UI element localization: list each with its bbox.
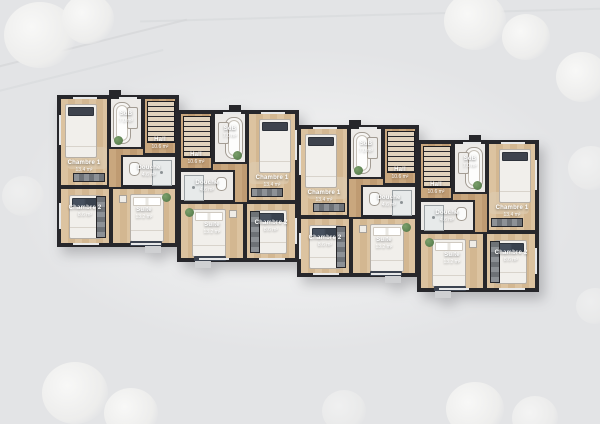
tree-icon — [446, 382, 504, 424]
tree-icon — [2, 176, 44, 216]
window-icon — [73, 97, 97, 99]
bed-icon — [130, 194, 164, 242]
shower-icon — [152, 160, 172, 186]
room-douche: Douche 4.6 m² — [361, 185, 417, 217]
toilet-icon — [129, 162, 140, 176]
sink-icon — [218, 122, 229, 144]
window-icon — [359, 127, 377, 129]
dresser-icon — [313, 203, 345, 212]
shower-icon — [184, 175, 204, 201]
room-area: 10.6 m² — [145, 144, 175, 150]
tree-icon — [556, 52, 600, 102]
window-icon — [535, 248, 537, 274]
room-douche: Douche 4.6 m² — [121, 155, 177, 187]
staircase-icon — [423, 146, 451, 188]
room-chambre-1: Chambre 1 13.4 m² — [299, 127, 349, 217]
entry-step — [435, 291, 451, 298]
window-icon — [371, 273, 401, 275]
plant-icon — [114, 136, 123, 145]
sink-icon — [127, 107, 138, 129]
housing-unit-2: Chambre 1 13.4 m² SdB 7.0 m² Hall 10.6 m… — [177, 110, 299, 262]
plant-icon — [402, 223, 411, 232]
plant-icon — [354, 166, 363, 175]
dresser-icon — [491, 218, 523, 227]
window-icon — [73, 243, 99, 245]
wardrobe-icon — [96, 196, 106, 238]
window-icon — [259, 258, 285, 260]
dresser-icon — [73, 173, 105, 182]
window-icon — [119, 97, 137, 99]
window-icon — [535, 160, 537, 190]
housing-unit-1: Chambre 1 13.4 m² SdB 7.0 m² Hall 10.6 m… — [57, 95, 179, 247]
tree-icon — [62, 0, 114, 44]
room-chambre-2: Chambre 2 8.6 m² — [485, 232, 537, 290]
room-area: 10.6 m² — [421, 189, 451, 195]
plant-icon — [162, 193, 171, 202]
nightstand-icon — [229, 210, 237, 218]
site-plan: Chambre 1 13.4 m² SdB 7.0 m² Hall 10.6 m… — [0, 0, 600, 424]
shower-icon — [424, 205, 444, 231]
bed-icon — [305, 134, 337, 188]
window-icon — [439, 288, 469, 290]
entry-step — [195, 261, 211, 268]
window-icon — [463, 142, 481, 144]
window-icon — [59, 203, 61, 229]
tree-icon — [104, 388, 158, 424]
room-area: 10.6 m² — [181, 159, 211, 165]
tree-icon — [42, 362, 108, 424]
window-icon — [261, 112, 285, 114]
window-icon — [313, 127, 337, 129]
toilet-icon — [456, 207, 467, 221]
nightstand-icon — [469, 240, 477, 248]
room-sdb: SdB 7.0 m² — [109, 97, 143, 149]
window-icon — [295, 130, 297, 160]
room-suite: Suite 13.2 m² — [179, 202, 245, 260]
bed-icon — [259, 119, 291, 173]
tree-icon — [512, 396, 558, 424]
tree-icon — [502, 14, 550, 60]
nightstand-icon — [119, 195, 127, 203]
room-suite: Suite 13.2 m² — [351, 217, 417, 275]
room-hall: Hall 10.6 m² — [383, 127, 417, 185]
room-sdb: SdB 7.0 m² — [213, 112, 247, 164]
room-chambre-1: Chambre 1 13.4 m² — [59, 97, 109, 187]
room-douche: Douche 4.6 m² — [179, 170, 235, 202]
window-icon — [295, 218, 297, 244]
window-icon — [501, 142, 525, 144]
bed-icon — [65, 104, 97, 158]
wardrobe-icon — [490, 241, 500, 283]
nightstand-icon — [359, 225, 367, 233]
plant-icon — [185, 208, 194, 217]
toilet-icon — [216, 177, 227, 191]
window-icon — [223, 112, 241, 114]
wardrobe-icon — [336, 226, 346, 268]
housing-unit-4: Chambre 1 13.4 m² SdB 7.0 m² Hall 10.6 m… — [417, 140, 539, 292]
shower-icon — [392, 190, 412, 216]
room-chambre-2: Chambre 2 8.6 m² — [59, 187, 111, 245]
plant-icon — [233, 151, 242, 160]
staircase-icon — [387, 131, 415, 173]
bed-icon — [370, 224, 404, 272]
window-icon — [59, 115, 61, 145]
chimney-icon — [349, 120, 361, 127]
entry-step — [385, 276, 401, 283]
wardrobe-icon — [250, 211, 260, 253]
window-icon — [299, 233, 301, 259]
window-icon — [499, 288, 525, 290]
window-icon — [299, 145, 301, 175]
room-chambre-2: Chambre 2 8.6 m² — [245, 202, 297, 260]
plant-icon — [425, 238, 434, 247]
housing-unit-3: Chambre 1 13.4 m² SdB 7.0 m² Hall 10.6 m… — [297, 125, 419, 277]
toilet-icon — [369, 192, 380, 206]
room-douche: Douche 4.6 m² — [419, 200, 475, 232]
room-hall: Hall 10.6 m² — [179, 112, 213, 170]
window-icon — [199, 258, 229, 260]
room-hall: Hall 10.6 m² — [143, 97, 177, 155]
bed-icon — [432, 239, 466, 287]
room-suite: Suite 13.2 m² — [111, 187, 177, 245]
room-sdb: SdB 7.0 m² — [453, 142, 487, 194]
room-area: 10.6 m² — [385, 174, 415, 180]
window-icon — [131, 243, 161, 245]
staircase-icon — [147, 101, 175, 143]
sink-icon — [458, 152, 469, 174]
sink-icon — [367, 137, 378, 159]
bed-icon — [192, 209, 226, 257]
window-icon — [313, 273, 339, 275]
room-chambre-1: Chambre 1 13.4 m² — [247, 112, 297, 202]
room-suite: Suite 13.2 m² — [419, 232, 485, 290]
tree-icon — [322, 390, 366, 424]
bed-icon — [499, 149, 531, 203]
room-chambre-1: Chambre 1 13.4 m² — [487, 142, 537, 232]
staircase-icon — [183, 116, 211, 158]
chimney-icon — [229, 105, 241, 112]
room-chambre-2: Chambre 2 8.6 m² — [299, 217, 351, 275]
room-hall: Hall 10.6 m² — [419, 142, 453, 200]
tree-icon — [444, 0, 506, 50]
plant-icon — [473, 181, 482, 190]
dresser-icon — [251, 188, 283, 197]
chimney-icon — [469, 135, 481, 142]
chimney-icon — [109, 90, 121, 97]
entry-step — [145, 246, 161, 253]
room-sdb: SdB 7.0 m² — [349, 127, 383, 179]
